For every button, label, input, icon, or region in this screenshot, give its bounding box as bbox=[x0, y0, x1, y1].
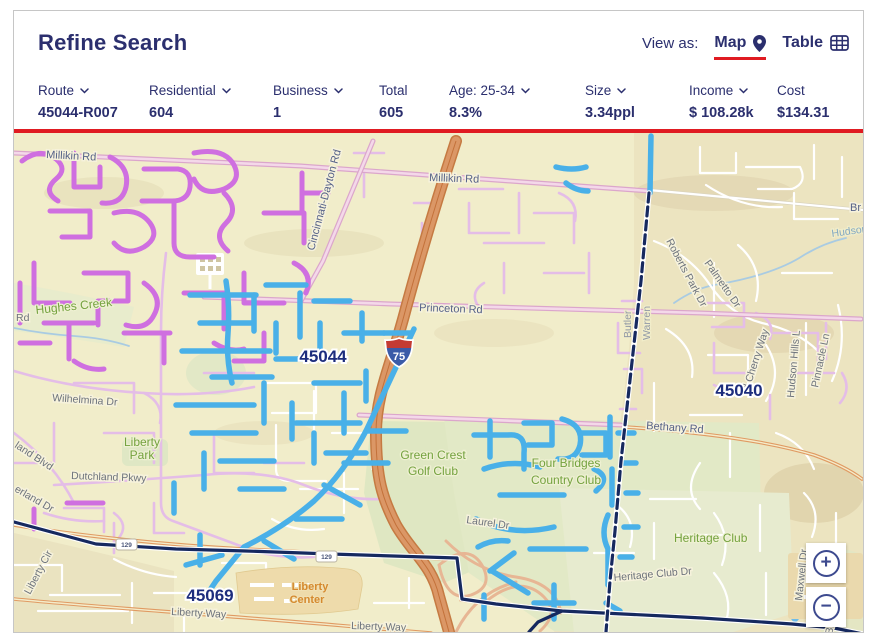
map-label-liberty-park: Liberty bbox=[124, 435, 160, 449]
filter-route-dropdown[interactable]: Route bbox=[38, 83, 118, 98]
filter-total: Total 605 bbox=[379, 83, 408, 121]
filter-age: Age: 25-34 8.3% bbox=[449, 83, 530, 121]
filter-cost-value: $134.31 bbox=[777, 105, 829, 121]
filter-size: Size 3.34ppl bbox=[585, 83, 635, 121]
filter-size-value: 3.34ppl bbox=[585, 105, 635, 121]
view-toggle: View as: Map Table bbox=[642, 34, 849, 52]
view-table-label: Table bbox=[782, 34, 823, 52]
filter-residential-dropdown[interactable]: Residential bbox=[149, 83, 231, 98]
filter-total-label: Total bbox=[379, 83, 408, 98]
filter-business: Business 1 bbox=[273, 83, 343, 121]
map-label-liberty-center: Center bbox=[290, 594, 326, 606]
map-label-warren-county: Warren bbox=[641, 306, 653, 340]
refine-search-panel: Refine Search View as: Map Table Route 4… bbox=[13, 10, 864, 633]
filter-business-value: 1 bbox=[273, 105, 343, 121]
filter-residential: Residential 604 bbox=[149, 83, 231, 121]
map-label-four-bridges: Four Bridges bbox=[532, 456, 601, 470]
chevron-down-icon bbox=[222, 88, 231, 94]
zip-label-45044: 45044 bbox=[299, 347, 347, 366]
view-as-label: View as: bbox=[642, 35, 698, 52]
route-129-number: 129 bbox=[121, 542, 132, 549]
filter-size-dropdown[interactable]: Size bbox=[585, 83, 635, 98]
filter-route-value: 45044-R007 bbox=[38, 105, 118, 121]
view-map-button[interactable]: Map bbox=[714, 34, 766, 60]
chevron-down-icon bbox=[739, 88, 748, 94]
panel-header: Refine Search View as: Map Table bbox=[14, 11, 863, 75]
filter-residential-value: 604 bbox=[149, 105, 231, 121]
filter-cost-label: Cost bbox=[777, 83, 829, 98]
map-label-liberty-way: Liberty Way bbox=[351, 620, 407, 632]
filter-age-value: 8.3% bbox=[449, 105, 530, 121]
chevron-down-icon bbox=[80, 88, 89, 94]
map-label-liberty-center: Liberty bbox=[292, 581, 330, 593]
map-label-green-crest: Green Crest bbox=[400, 448, 466, 462]
filter-total-value: 605 bbox=[379, 105, 408, 121]
chevron-down-icon bbox=[521, 88, 530, 94]
filter-business-dropdown[interactable]: Business bbox=[273, 83, 343, 98]
filter-income-dropdown[interactable]: Income bbox=[689, 83, 754, 98]
chevron-down-icon bbox=[334, 88, 343, 94]
filter-bar: Route 45044-R007 Residential 604 Busines… bbox=[14, 75, 863, 129]
interstate-75-number: 75 bbox=[393, 351, 405, 363]
map-label-heritage-club: Heritage Club bbox=[674, 531, 748, 545]
map-label-rd: Rd bbox=[16, 312, 30, 324]
map-label-princeton-rd: Princeton Rd bbox=[419, 302, 483, 316]
map-label-green-crest: Golf Club bbox=[408, 464, 458, 478]
route-129-shield: 129 bbox=[316, 551, 337, 562]
map-canvas[interactable]: 75 129 129 Millikin Rd Millikin Rd Cinci… bbox=[14, 133, 863, 632]
filter-income-value: $ 108.28k bbox=[689, 105, 754, 121]
map-label-liberty-park: Park bbox=[130, 448, 156, 462]
map-label-four-bridges: Country Club bbox=[531, 473, 601, 487]
table-grid-icon bbox=[830, 35, 849, 51]
zoom-in-button[interactable]: + bbox=[806, 543, 846, 583]
page-title: Refine Search bbox=[38, 30, 187, 56]
filter-cost: Cost $134.31 bbox=[777, 83, 829, 121]
zip-label-45069: 45069 bbox=[186, 586, 233, 605]
filter-route: Route 45044-R007 bbox=[38, 83, 118, 121]
minus-icon: − bbox=[813, 594, 840, 621]
filter-age-dropdown[interactable]: Age: 25-34 bbox=[449, 83, 530, 98]
route-129-shield: 129 bbox=[116, 539, 137, 550]
zoom-out-button[interactable]: − bbox=[806, 587, 846, 627]
route-129-number: 129 bbox=[321, 554, 332, 561]
map-pin-icon bbox=[753, 35, 766, 52]
view-map-label: Map bbox=[714, 34, 746, 52]
map-container: 75 129 129 Millikin Rd Millikin Rd Cinci… bbox=[14, 133, 863, 632]
map-label-millikin-rd: Millikin Rd bbox=[429, 172, 480, 186]
view-table-button[interactable]: Table bbox=[782, 34, 849, 52]
zip-label-45040: 45040 bbox=[715, 381, 762, 400]
chevron-down-icon bbox=[617, 88, 626, 94]
map-label-br: Br bbox=[850, 202, 861, 214]
plus-icon: + bbox=[813, 550, 840, 577]
map-label-butler-county: Butler bbox=[622, 310, 634, 338]
filter-income: Income $ 108.28k bbox=[689, 83, 754, 121]
